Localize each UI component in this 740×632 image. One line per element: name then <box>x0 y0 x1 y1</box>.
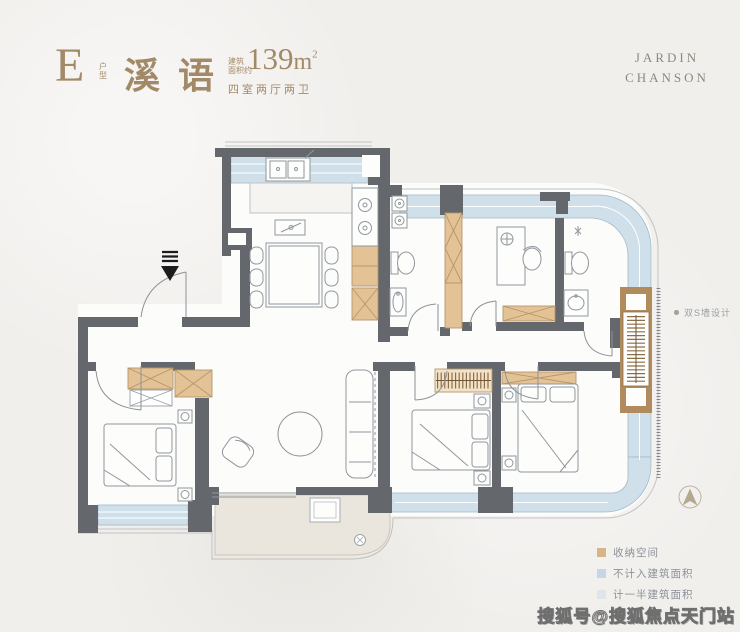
logo-line2: CHANSON <box>606 68 728 88</box>
logo-line1: JARDIN <box>606 48 728 68</box>
area-unit: m <box>294 49 313 75</box>
floorplan-page: { "header": { "unit_letter": "E", "unit_… <box>0 0 740 632</box>
dining-table <box>250 243 338 308</box>
legend-item-half: 计一半建筑面积 <box>597 587 694 602</box>
plan-name: 溪语 <box>124 47 232 99</box>
legend: 收纳空间 不计入建筑面积 计一半建筑面积 <box>597 545 694 608</box>
wall-design-annotation: 双S墙设计 <box>684 306 731 319</box>
unit-label: 户型 <box>99 62 109 80</box>
unit-letter: E <box>55 38 84 93</box>
brand-logo: JARDIN CHANSON <box>606 48 728 88</box>
area-number: 139 <box>247 41 294 76</box>
area-sup: 2 <box>312 49 318 61</box>
stove <box>352 188 378 246</box>
legend-item-excluded: 不计入建筑面积 <box>597 566 694 581</box>
legend-item-storage: 收纳空间 <box>597 545 694 560</box>
excluded-swatch <box>597 569 606 578</box>
toilet-2 <box>565 252 589 274</box>
compass-icon <box>679 486 701 508</box>
legend-label: 收纳空间 <box>613 545 659 560</box>
walkin-closet <box>620 287 652 413</box>
legend-label: 不计入建筑面积 <box>613 566 694 581</box>
area-value: 139m2 <box>247 41 318 77</box>
storage-swatch <box>597 548 606 557</box>
kitchen-island <box>275 220 305 235</box>
sofa <box>346 370 373 478</box>
legend-label: 计一半建筑面积 <box>613 587 694 602</box>
sink-1 <box>390 288 406 316</box>
toilet-1 <box>391 252 415 274</box>
layout-description: 四室两厅两卫 <box>228 81 312 97</box>
sink-2 <box>564 290 588 316</box>
annotation-bullet <box>674 310 679 315</box>
terrace <box>212 495 393 559</box>
floor-plan-svg <box>0 0 740 632</box>
hanging-wardrobe <box>435 369 492 392</box>
entrance-marker-icon <box>161 252 179 281</box>
watermark: 搜狐号@搜狐焦点天门站 <box>537 602 735 627</box>
half-swatch <box>597 590 606 599</box>
